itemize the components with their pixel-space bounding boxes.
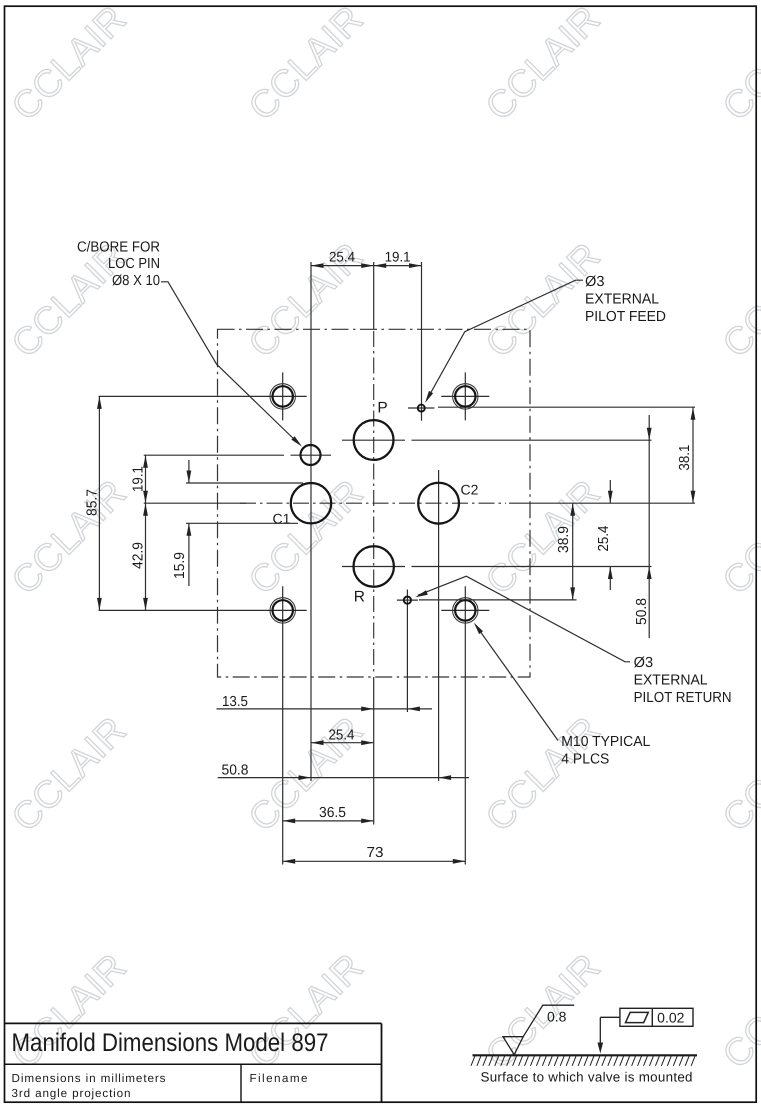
svg-text:Ø3: Ø3 xyxy=(585,274,604,290)
svg-text:PILOT RETURN: PILOT RETURN xyxy=(634,690,732,706)
svg-text:42.9: 42.9 xyxy=(131,542,147,569)
svg-text:Manifold Dimensions Model 897: Manifold Dimensions Model 897 xyxy=(12,1029,329,1057)
svg-text:PILOT FEED: PILOT FEED xyxy=(585,309,666,325)
svg-text:19.1: 19.1 xyxy=(131,466,147,492)
svg-text:25.4: 25.4 xyxy=(329,249,355,265)
svg-text:P: P xyxy=(377,399,387,416)
svg-text:36.5: 36.5 xyxy=(319,805,346,821)
svg-text:50.8: 50.8 xyxy=(634,598,650,625)
svg-text:85.7: 85.7 xyxy=(84,489,100,516)
svg-text:C2: C2 xyxy=(461,482,479,498)
svg-text:Ø3: Ø3 xyxy=(634,655,653,671)
svg-text:0.02: 0.02 xyxy=(657,1009,684,1025)
svg-text:4 PLCS: 4 PLCS xyxy=(561,752,609,768)
svg-text:Surface to which valve is moun: Surface to which valve is mounted xyxy=(481,1069,693,1084)
svg-text:C/BORE FOR: C/BORE FOR xyxy=(77,240,160,256)
svg-text:Ø8 X 10: Ø8 X 10 xyxy=(112,273,160,289)
svg-text:73: 73 xyxy=(367,845,384,861)
svg-text:19.1: 19.1 xyxy=(385,249,411,265)
svg-text:Dimensions in millimeters: Dimensions in millimeters xyxy=(12,1072,166,1085)
svg-text:25.4: 25.4 xyxy=(596,526,612,552)
svg-text:38.1: 38.1 xyxy=(677,445,693,471)
svg-text:R: R xyxy=(354,589,365,606)
svg-text:3rd angle projection: 3rd angle projection xyxy=(12,1087,131,1100)
svg-text:EXTERNAL: EXTERNAL xyxy=(634,672,708,688)
svg-text:0.8: 0.8 xyxy=(547,1008,567,1024)
svg-text:EXTERNAL: EXTERNAL xyxy=(585,292,659,308)
svg-text:Filename: Filename xyxy=(250,1072,308,1085)
svg-text:15.9: 15.9 xyxy=(172,552,188,579)
svg-text:38.9: 38.9 xyxy=(556,526,572,553)
svg-text:LOC PIN: LOC PIN xyxy=(108,256,160,272)
svg-text:M10 TYPICAL: M10 TYPICAL xyxy=(561,734,650,750)
svg-text:25.4: 25.4 xyxy=(329,728,355,744)
svg-text:50.8: 50.8 xyxy=(222,763,249,779)
svg-text:C1: C1 xyxy=(273,510,291,526)
svg-text:13.5: 13.5 xyxy=(222,694,248,710)
